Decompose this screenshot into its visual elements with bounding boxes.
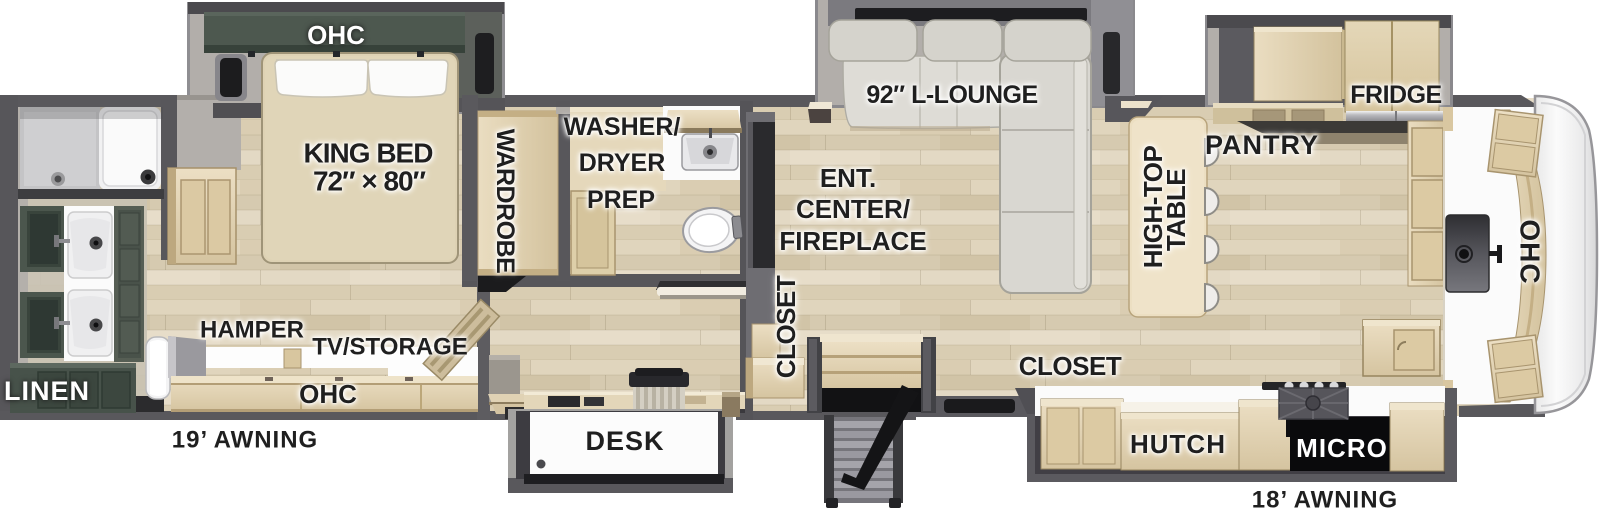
svg-text:CLOSET: CLOSET [1019,351,1122,381]
svg-text:MICRO: MICRO [1296,433,1388,463]
svg-text:WARDROBE: WARDROBE [491,129,519,274]
svg-text:CLOSET: CLOSET [771,275,801,378]
svg-text:TABLE: TABLE [1161,169,1191,251]
svg-text:KING BED: KING BED [304,138,434,169]
svg-text:DRYER: DRYER [579,149,666,177]
svg-text:OHC: OHC [1515,219,1546,284]
svg-text:72″ × 80″: 72″ × 80″ [313,166,426,197]
svg-text:LINEN: LINEN [4,376,90,406]
svg-text:TV/STORAGE: TV/STORAGE [312,334,468,361]
svg-text:DESK: DESK [585,426,664,456]
svg-text:PREP: PREP [587,186,655,214]
svg-text:FIREPLACE: FIREPLACE [779,226,926,256]
svg-text:19’ AWNING: 19’ AWNING [172,427,318,454]
svg-text:CENTER/: CENTER/ [796,194,910,224]
svg-text:HAMPER: HAMPER [200,317,304,344]
svg-text:WASHER/: WASHER/ [564,113,681,141]
svg-text:PANTRY: PANTRY [1205,130,1319,160]
svg-text:18’ AWNING: 18’ AWNING [1252,487,1398,513]
svg-text:HUTCH: HUTCH [1130,429,1226,459]
svg-text:92″ L-LOUNGE: 92″ L-LOUNGE [866,81,1037,109]
svg-text:FRIDGE: FRIDGE [1350,81,1441,109]
svg-text:ENT.: ENT. [820,163,876,193]
svg-text:OHC: OHC [299,379,357,409]
svg-text:OHC: OHC [307,20,365,50]
